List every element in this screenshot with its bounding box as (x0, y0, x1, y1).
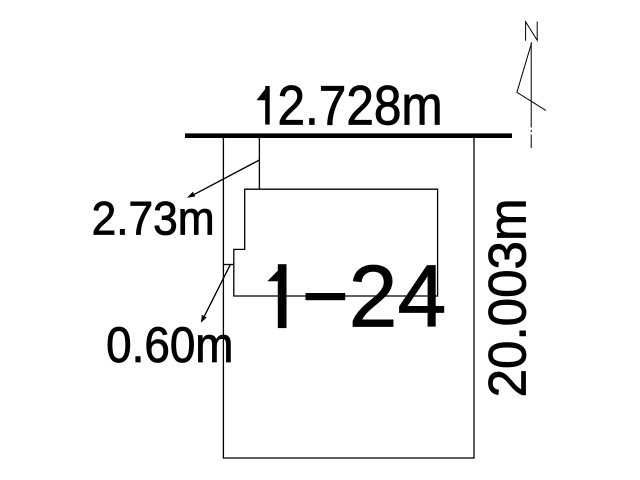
svg-text:0.60m: 0.60m (106, 317, 233, 373)
svg-text:2.73m: 2.73m (92, 191, 215, 244)
svg-text:2.728m: 2.728m (278, 74, 443, 137)
svg-text:20.003m: 20.003m (479, 198, 538, 397)
svg-text:24: 24 (349, 247, 447, 346)
